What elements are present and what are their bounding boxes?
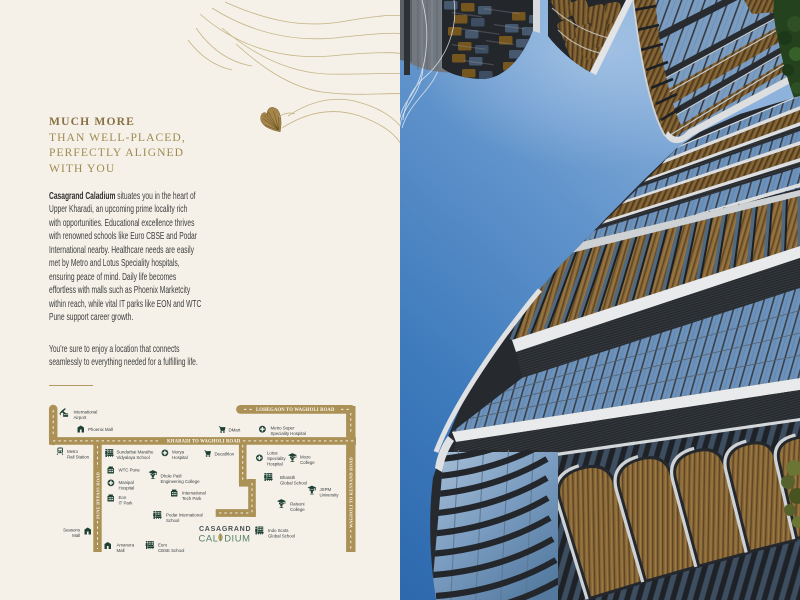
svg-text:DIUM: DIUM <box>224 533 250 544</box>
svg-text:Indo Scots: Indo Scots <box>268 528 289 533</box>
svg-text:Global School: Global School <box>268 534 295 539</box>
svg-text:Vidyalaya School: Vidyalaya School <box>117 455 150 460</box>
svg-text:University: University <box>320 493 340 498</box>
svg-text:Speciality Hospital: Speciality Hospital <box>271 431 306 436</box>
svg-text:WAGHOLI TO KESNAND ROAD: WAGHOLI TO KESNAND ROAD <box>349 456 354 528</box>
svg-text:Airport: Airport <box>74 415 88 420</box>
svg-text:Hospital: Hospital <box>119 486 135 491</box>
svg-text:Lotus: Lotus <box>267 451 278 456</box>
svg-text:Speciality: Speciality <box>267 456 286 461</box>
svg-text:Seasons: Seasons <box>63 528 81 533</box>
svg-text:Eon: Eon <box>119 495 127 500</box>
svg-text:Mall: Mall <box>117 548 125 553</box>
svg-text:IT Park: IT Park <box>119 501 134 506</box>
svg-text:Mall: Mall <box>72 533 80 538</box>
svg-text:Metro Super: Metro Super <box>271 426 295 431</box>
svg-text:Dhole Patil: Dhole Patil <box>161 474 182 479</box>
svg-text:Bharath: Bharath <box>280 475 296 480</box>
svg-text:Morya: Morya <box>172 450 185 455</box>
svg-text:CAL: CAL <box>199 533 219 544</box>
svg-text:Moze: Moze <box>300 455 311 460</box>
svg-text:School: School <box>166 518 179 523</box>
svg-text:Hospital: Hospital <box>172 455 188 460</box>
svg-text:Raisoni: Raisoni <box>290 502 305 507</box>
svg-text:Engineering College: Engineering College <box>161 479 201 484</box>
svg-text:Global School: Global School <box>280 481 307 486</box>
svg-text:Rail Station: Rail Station <box>67 455 90 460</box>
svg-text:International: International <box>74 410 98 415</box>
svg-text:Amanora: Amanora <box>117 543 135 548</box>
svg-text:Sundarbai Marathe: Sundarbai Marathe <box>117 450 154 455</box>
svg-text:JSPM: JSPM <box>320 487 332 492</box>
svg-text:LOHEGAON TO WAGHOLI ROAD: LOHEGAON TO WAGHOLI ROAD <box>256 408 335 413</box>
svg-text:International: International <box>182 491 206 496</box>
svg-text:CBSE School: CBSE School <box>158 548 184 553</box>
svg-text:Decathlon: Decathlon <box>215 452 235 457</box>
svg-text:KHARADI TO WAGHOLI ROAD: KHARADI TO WAGHOLI ROAD <box>167 440 241 445</box>
svg-text:College: College <box>300 460 315 465</box>
svg-text:DMart: DMart <box>229 428 242 433</box>
svg-text:PUNE BYPASS ROAD: PUNE BYPASS ROAD <box>95 471 100 519</box>
svg-text:Metro: Metro <box>67 449 79 454</box>
svg-text:WTC Pune: WTC Pune <box>119 468 141 473</box>
svg-text:Hospital: Hospital <box>267 462 283 467</box>
svg-text:Podar International: Podar International <box>166 513 203 518</box>
svg-text:College: College <box>290 507 305 512</box>
svg-text:Phoenix Mall: Phoenix Mall <box>88 427 113 432</box>
svg-text:Euro: Euro <box>158 543 168 548</box>
svg-text:Tech Park: Tech Park <box>182 496 202 501</box>
svg-text:Manipal: Manipal <box>119 480 134 485</box>
